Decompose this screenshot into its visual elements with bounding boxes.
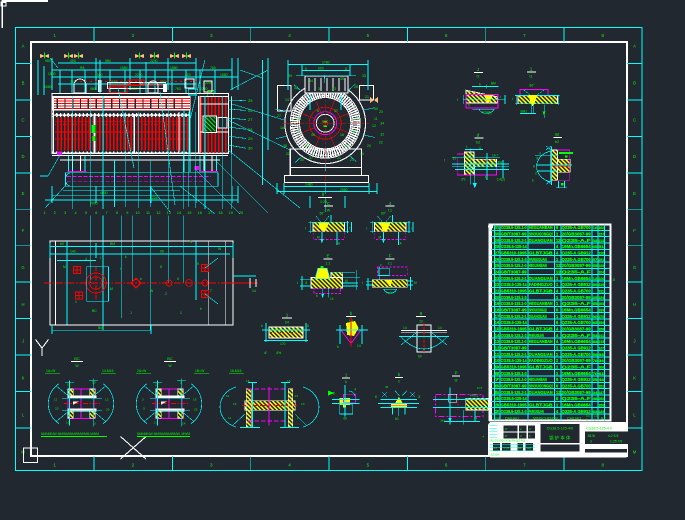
svg-text:12: 12 — [372, 124, 376, 128]
svg-text:C: C — [21, 117, 24, 122]
svg-text:Ⅰ: Ⅰ — [120, 267, 121, 271]
svg-text:锅 炉 本 体: 锅 炉 本 体 — [549, 435, 571, 442]
svg-text:1: 1 — [586, 418, 588, 422]
svg-text:CG38.5-125-14: CG38.5-125-14 — [501, 244, 528, 249]
svg-text:4: 4 — [354, 387, 356, 391]
svg-text:b: b — [479, 83, 481, 87]
svg-text:PAIWUGUAN: PAIWUGUAN — [529, 257, 547, 262]
svg-text:35: 35 — [340, 77, 344, 81]
svg-text:t: t — [305, 227, 306, 231]
svg-text:CG38.5-125.2-1: CG38.5-125.2-1 — [501, 276, 528, 281]
svg-text:23: 23 — [55, 407, 59, 411]
svg-text:Q235-A.GB700: Q235-A.GB700 — [562, 383, 592, 388]
svg-text:M: M — [345, 279, 348, 283]
svg-text:32: 32 — [305, 144, 309, 148]
svg-text:14: 14 — [495, 333, 500, 338]
svg-text:37: 37 — [309, 156, 313, 160]
svg-text:1A=W: 1A=W — [46, 369, 56, 373]
svg-text:b: b — [140, 277, 142, 281]
svg-text:B: B — [22, 80, 25, 85]
svg-text:27: 27 — [495, 251, 500, 256]
svg-text:Q235-A.F: Q235-A.F — [562, 238, 592, 243]
svg-text:22: 22 — [155, 383, 159, 387]
svg-text:18: 18 — [495, 307, 500, 312]
svg-text:DUANGUAN: DUANGUAN — [529, 352, 553, 357]
svg-text:G: G — [633, 265, 636, 270]
svg-text:26: 26 — [495, 257, 500, 262]
svg-text:51: 51 — [599, 244, 605, 249]
svg-text:5: 5 — [367, 463, 370, 468]
svg-text:12: 12 — [556, 270, 561, 275]
svg-text:SHOUKONGQI: SHOUKONGQI — [529, 232, 553, 237]
svg-text:33: 33 — [593, 238, 599, 243]
svg-text:20: 20 — [379, 110, 383, 114]
svg-text:28: 28 — [354, 85, 358, 89]
svg-text:CG38.5-125.1-0: CG38.5-125.1-0 — [501, 263, 528, 268]
svg-text:t3: t3 — [455, 379, 458, 383]
svg-text:Q235-A.GB700: Q235-A.GB700 — [562, 352, 592, 357]
svg-text:Q235-A.F: Q235-A.F — [562, 333, 592, 338]
svg-text:CG38.5-125.1-0: CG38.5-125.1-0 — [501, 377, 528, 382]
svg-text:13: 13 — [301, 402, 305, 406]
svg-text:G: G — [21, 265, 24, 270]
svg-text:48: 48 — [593, 396, 599, 401]
svg-text:14: 14 — [357, 344, 361, 348]
svg-text:11: 11 — [226, 394, 229, 398]
svg-text:36: 36 — [352, 130, 356, 134]
svg-text:CG38.5-125-14: CG38.5-125-14 — [501, 282, 528, 287]
svg-text:16: 16 — [340, 133, 344, 137]
svg-text:GB5310-1995: GB5310-1995 — [501, 364, 528, 369]
svg-text:Ⅱ: Ⅱ — [322, 192, 324, 197]
svg-text:Ⅰ: Ⅰ — [100, 256, 101, 260]
svg-text:16Mn.GB6654: 16Mn.GB6654 — [562, 371, 592, 376]
svg-text:18: 18 — [218, 211, 222, 215]
svg-text:2T: 2T — [505, 434, 509, 438]
svg-text:GB5310-1995: GB5310-1995 — [501, 289, 528, 294]
svg-text:273: 273 — [599, 314, 605, 319]
svg-text:32: 32 — [380, 132, 384, 136]
svg-text:Q235-A.F: Q235-A.F — [562, 396, 592, 401]
svg-text:GB5310-1995: GB5310-1995 — [501, 402, 528, 407]
svg-text:6: 6 — [445, 33, 448, 38]
svg-text:H: H — [633, 302, 636, 307]
svg-text:5: 5 — [190, 240, 192, 244]
svg-text:Q235-A GB912: Q235-A GB912 — [562, 282, 592, 287]
svg-text:M: M — [317, 235, 320, 239]
svg-text:CG38.5-125-4/0: CG38.5-125-4/0 — [547, 427, 573, 431]
svg-text:193: 193 — [599, 263, 605, 268]
svg-text:d: d — [477, 133, 480, 138]
svg-text:HEGUANBAN: HEGUANBAN — [529, 377, 547, 382]
svg-text:29: 29 — [296, 117, 300, 121]
svg-text:K: K — [22, 376, 25, 381]
svg-text:14: 14 — [403, 326, 407, 330]
svg-text:t: t — [297, 281, 298, 285]
svg-text:SJ GH: SJ GH — [491, 453, 500, 457]
svg-text:5: 5 — [305, 67, 307, 71]
svg-text:3: 3 — [64, 211, 66, 215]
svg-text:3: 3 — [210, 463, 213, 468]
svg-text:16Mn.GB6654: 16Mn.GB6654 — [562, 244, 592, 249]
svg-text:16Mn.GB6654: 16Mn.GB6654 — [562, 276, 592, 281]
svg-text:3: 3 — [180, 381, 182, 385]
svg-text:14-7: 14-7 — [492, 154, 499, 158]
svg-text:t: t — [362, 281, 363, 285]
svg-text:4: 4 — [288, 33, 291, 38]
svg-text:M: M — [63, 265, 66, 269]
svg-text:45: 45 — [385, 385, 389, 389]
svg-text:17: 17 — [495, 314, 500, 319]
svg-text:CG38.5-125.1-0: CG38.5-125.1-0 — [501, 301, 528, 306]
svg-text:45: 45 — [311, 133, 315, 137]
svg-text:b: b — [261, 324, 263, 328]
svg-text:GB/T3087-99: GB/T3087-99 — [501, 383, 528, 388]
svg-text:53: 53 — [593, 333, 599, 338]
svg-text:23: 23 — [495, 276, 500, 281]
svg-text:t: t — [457, 98, 458, 102]
svg-text:1580: 1580 — [48, 72, 56, 76]
svg-text:61: 61 — [599, 371, 605, 376]
svg-text:12: 12 — [556, 390, 561, 395]
svg-text:4-M12: 4-M12 — [470, 394, 479, 398]
svg-text:100: 100 — [599, 276, 605, 281]
svg-text:19: 19 — [355, 117, 359, 121]
svg-text:30: 30 — [495, 232, 500, 237]
svg-text:BM: BM — [491, 82, 496, 86]
svg-text:P: P — [455, 371, 458, 376]
svg-text:20: 20 — [239, 211, 243, 215]
svg-text:BC: BC — [92, 309, 97, 313]
svg-text:1580: 1580 — [170, 66, 178, 70]
svg-text:21: 21 — [495, 289, 500, 294]
svg-text:t: t — [512, 97, 513, 101]
svg-text:GLBTJGB: GLBTJGB — [529, 251, 553, 256]
svg-text:90: 90 — [593, 314, 599, 319]
svg-text:19: 19 — [495, 301, 500, 306]
svg-text:8: 8 — [537, 157, 539, 161]
svg-text:1580: 1580 — [44, 85, 52, 89]
svg-text:107: 107 — [599, 345, 605, 350]
svg-text:16Mn.GB6654: 16Mn.GB6654 — [562, 339, 592, 344]
svg-text:t: t — [500, 95, 501, 99]
svg-text:SHOUKONGQI: SHOUKONGQI — [529, 307, 547, 312]
svg-text:8: 8 — [345, 67, 347, 71]
svg-text:CG38.5-125.1-3: CG38.5-125.1-3 — [501, 257, 528, 262]
svg-text:283: 283 — [599, 301, 605, 306]
svg-text:356: 356 — [599, 320, 605, 325]
svg-text:F: F — [389, 254, 392, 259]
svg-text:GB/T3087-99: GB/T3087-99 — [501, 307, 528, 312]
svg-text:PAIWUGUAN: PAIWUGUAN — [529, 333, 544, 338]
svg-text:10: 10 — [136, 211, 140, 215]
svg-text:57: 57 — [593, 257, 599, 262]
svg-text:11: 11 — [374, 117, 378, 121]
svg-text:187: 187 — [599, 390, 605, 395]
svg-text:7000: 7000 — [90, 202, 98, 206]
svg-text:20/GB3087-99: 20/GB3087-99 — [562, 263, 592, 268]
svg-text:21: 21 — [337, 156, 341, 160]
svg-text:11: 11 — [228, 416, 231, 420]
svg-text:12: 12 — [556, 263, 561, 268]
svg-text:DUANGUAN: DUANGUAN — [529, 276, 553, 281]
svg-text:DUANGUAN: DUANGUAN — [529, 314, 547, 319]
svg-text:14: 14 — [330, 297, 334, 301]
svg-text:980: 980 — [105, 59, 111, 63]
svg-text:4000: 4000 — [100, 191, 108, 195]
svg-text:1:1: 1:1 — [326, 262, 331, 266]
svg-text:2: 2 — [398, 380, 400, 384]
svg-text:b: b — [200, 307, 202, 311]
svg-text:NMNMNW MMWMWMWMW, MWM: NMNMNW MMWMWMWMW, MWM — [137, 432, 190, 436]
svg-text:20/GB3087-99: 20/GB3087-99 — [562, 295, 592, 300]
svg-text:24: 24 — [495, 270, 500, 275]
svg-text:170: 170 — [280, 342, 286, 346]
svg-text:HEGUANBAN: HEGUANBAN — [529, 339, 553, 344]
svg-text:t:1: t:1 — [388, 262, 392, 266]
svg-text:13: 13 — [167, 211, 171, 215]
svg-text:9: 9 — [126, 211, 128, 215]
svg-text:12: 12 — [156, 211, 160, 215]
svg-text:93: 93 — [599, 352, 605, 357]
svg-text:31: 31 — [453, 157, 457, 161]
svg-text:8: 8 — [533, 165, 535, 169]
svg-text:9: 9 — [143, 407, 145, 411]
svg-text:XYZ: XYZ — [504, 446, 510, 450]
svg-text:450: 450 — [70, 59, 76, 63]
svg-text:6: 6 — [177, 277, 179, 281]
svg-text:760: 760 — [175, 87, 181, 91]
svg-text:35: 35 — [593, 295, 599, 300]
svg-text:WQ: WQ — [527, 446, 533, 450]
svg-text:FADINGZUO: FADINGZUO — [529, 282, 554, 287]
svg-text:2240: 2240 — [150, 59, 158, 63]
svg-text:27: 27 — [248, 117, 253, 122]
svg-text:2A=W: 2A=W — [137, 369, 147, 373]
svg-text:K: K — [633, 376, 636, 381]
svg-text:14-M16: 14-M16 — [102, 369, 114, 373]
svg-text:980: 980 — [45, 59, 51, 63]
svg-text:HEGUANBAN: HEGUANBAN — [529, 225, 553, 230]
svg-text:2: 2 — [132, 463, 135, 468]
svg-text:60°: 60° — [381, 212, 387, 216]
svg-text:60: 60 — [418, 355, 422, 359]
svg-text:900: 900 — [318, 67, 324, 71]
svg-text:129: 129 — [599, 282, 605, 287]
svg-text:16: 16 — [198, 211, 202, 215]
svg-text:31: 31 — [495, 225, 500, 230]
svg-text:24: 24 — [182, 422, 186, 426]
svg-text:t: t — [444, 159, 445, 163]
svg-text:13: 13 — [495, 339, 500, 344]
svg-text:b: b — [337, 345, 339, 349]
svg-text:Q235-A.GB700: Q235-A.GB700 — [562, 320, 592, 325]
svg-text:60°: 60° — [529, 83, 535, 87]
svg-text:980: 980 — [90, 87, 96, 91]
svg-text:96: 96 — [160, 250, 164, 254]
svg-text:GB5310-1995: GB5310-1995 — [501, 326, 528, 331]
svg-text:140: 140 — [70, 250, 76, 254]
svg-text:M: M — [379, 235, 382, 239]
svg-text:2240: 2240 — [205, 81, 213, 85]
svg-text:20: 20 — [106, 408, 110, 412]
svg-text:25: 25 — [495, 263, 500, 268]
svg-text:t:1: t:1 — [388, 209, 392, 213]
svg-text:3*1: 3*1 — [461, 178, 466, 182]
svg-text:5: 5 — [367, 33, 370, 38]
svg-text:b2: b2 — [555, 140, 559, 144]
svg-text:Q235-A.GB700: Q235-A.GB700 — [562, 257, 592, 262]
svg-text:760: 760 — [210, 66, 216, 70]
svg-text:3k1: 3k1 — [440, 419, 445, 423]
svg-text:A: A — [22, 43, 25, 48]
svg-text:5: 5 — [85, 211, 87, 215]
svg-text:34: 34 — [380, 122, 384, 126]
svg-text:PAIWUGUAN: PAIWUGUAN — [529, 409, 544, 414]
svg-text:E: E — [22, 191, 25, 196]
svg-text:CG38.5-125.1-3: CG38.5-125.1-3 — [501, 371, 528, 376]
svg-text:2: 2 — [132, 33, 135, 38]
svg-text:213: 213 — [599, 238, 605, 243]
svg-text:3: 3 — [210, 33, 213, 38]
svg-text:3: 3 — [318, 87, 320, 91]
svg-text:b: b — [345, 380, 347, 384]
svg-text:.8: .8 — [612, 278, 615, 282]
svg-text:8: 8 — [160, 265, 162, 269]
svg-text:11: 11 — [495, 352, 500, 357]
svg-text:b4: b4 — [285, 321, 289, 325]
svg-text:19: 19 — [92, 381, 96, 385]
svg-text:16Mn.GB6654: 16Mn.GB6654 — [562, 402, 592, 407]
svg-text:CG38.5-125.2-1: CG38.5-125.2-1 — [501, 314, 528, 319]
svg-text:2: 2 — [54, 211, 56, 215]
svg-text:2: 2 — [165, 292, 167, 296]
svg-text:65: 65 — [593, 244, 599, 249]
svg-text:25: 25 — [248, 98, 253, 103]
svg-text:4: 4 — [479, 146, 481, 150]
svg-text:Q235-A GB912: Q235-A GB912 — [562, 377, 592, 382]
svg-text:27: 27 — [277, 114, 281, 118]
svg-text:2: 2 — [594, 418, 596, 422]
svg-text:CG38.5-125.2-1: CG38.5-125.2-1 — [501, 352, 528, 357]
svg-text:CG38.5-125-4-0: CG38.5-125-4-0 — [586, 427, 612, 431]
svg-text:85: 85 — [593, 320, 599, 325]
svg-text:16: 16 — [67, 383, 71, 387]
svg-text:4%: 4% — [498, 161, 503, 165]
svg-text:13: 13 — [287, 379, 291, 383]
svg-text:GB/T3087-99: GB/T3087-99 — [501, 232, 528, 237]
svg-text:1:4(2): 1:4(2) — [497, 178, 506, 182]
svg-text:NMNMNW MMWMWMWMWMM.MWM: NMNMNW MMWMWMWMWMM.MWM — [41, 432, 99, 436]
svg-text:8: 8 — [116, 211, 118, 215]
svg-text:1:25 7/9: 1:25 7/9 — [610, 439, 622, 443]
svg-text:60: 60 — [344, 417, 348, 421]
svg-text:Q235-A.GB700: Q235-A.GB700 — [562, 225, 592, 230]
svg-text:12: 12 — [495, 345, 500, 350]
svg-text:2980: 2980 — [340, 188, 348, 192]
svg-text:GB5310-1995: GB5310-1995 — [501, 251, 528, 256]
svg-text:70: 70 — [593, 371, 599, 376]
svg-text:2: 2 — [535, 172, 537, 176]
svg-text:36: 36 — [599, 358, 605, 363]
svg-text:7: 7 — [523, 463, 526, 468]
svg-text:12: 12 — [419, 320, 423, 324]
svg-text:44: 44 — [309, 79, 313, 83]
svg-text:3: 3 — [142, 398, 144, 402]
svg-text:CG38.5-125.1-3: CG38.5-125.1-3 — [501, 333, 528, 338]
svg-text:78: 78 — [593, 358, 599, 363]
svg-text:12: 12 — [105, 398, 109, 402]
svg-text:t: t — [466, 145, 467, 149]
svg-text:38: 38 — [283, 144, 287, 148]
svg-text:43: 43 — [332, 87, 336, 91]
svg-text:H: H — [21, 302, 24, 307]
svg-text:BZ: BZ — [518, 446, 522, 450]
svg-text:b0: b0 — [60, 242, 64, 246]
svg-text:34: 34 — [593, 390, 599, 395]
svg-text:8: 8 — [307, 324, 309, 328]
svg-text:14: 14 — [474, 416, 478, 420]
svg-text:55: 55 — [593, 301, 599, 306]
svg-text:Q235-A.F: Q235-A.F — [562, 270, 592, 275]
svg-text:19: 19 — [229, 211, 233, 215]
svg-text:DUANGUAN: DUANGUAN — [529, 390, 553, 395]
svg-text:4: 4 — [74, 211, 76, 215]
svg-text:4.2 5.8: 4.2 5.8 — [608, 434, 618, 438]
svg-text:6: 6 — [317, 109, 319, 113]
svg-text:169: 169 — [599, 409, 605, 414]
svg-text:215: 215 — [599, 339, 605, 344]
svg-text:14: 14 — [252, 289, 256, 293]
svg-text:CAILIAO: CAILIAO — [567, 416, 581, 420]
svg-text:BC: BC — [167, 356, 173, 361]
svg-text:1T: 1T — [505, 427, 509, 431]
svg-text:C: C — [633, 117, 636, 122]
svg-text:t: t — [367, 227, 368, 231]
svg-text:259: 259 — [599, 402, 605, 407]
svg-text:GB/T3087-99: GB/T3087-99 — [501, 345, 528, 350]
svg-text:20/GB3087-99: 20/GB3087-99 — [562, 358, 592, 363]
svg-text:154: 154 — [599, 295, 605, 300]
svg-text:t: t — [411, 227, 412, 231]
svg-text:1: 1 — [75, 300, 77, 304]
svg-text:1: 1 — [530, 67, 533, 72]
svg-text:BM: BM — [110, 242, 115, 246]
svg-text:Q235-A.GB700: Q235-A.GB700 — [562, 289, 592, 294]
svg-text:16: 16 — [193, 398, 197, 402]
svg-text:A: A — [633, 43, 636, 48]
svg-text:Q235-A GB912: Q235-A GB912 — [562, 314, 592, 319]
svg-text:12: 12 — [593, 276, 599, 281]
svg-text:GLBTJGB: GLBTJGB — [529, 364, 553, 369]
svg-text:7: 7 — [210, 289, 212, 293]
svg-text:16: 16 — [246, 379, 250, 383]
svg-text:11: 11 — [146, 211, 150, 215]
svg-text:Q235-A.F: Q235-A.F — [562, 364, 592, 369]
svg-text:5: 5 — [297, 130, 299, 134]
svg-text:1780: 1780 — [322, 61, 330, 65]
svg-text:1580: 1580 — [220, 73, 228, 77]
svg-text:b=5: b=5 — [387, 290, 392, 294]
svg-text:b: b — [532, 179, 534, 183]
svg-text:1580: 1580 — [95, 73, 103, 77]
svg-text:M: M — [633, 449, 637, 454]
svg-text:358: 358 — [599, 326, 605, 331]
svg-text:29: 29 — [495, 238, 500, 243]
svg-text:t1: t1 — [552, 99, 555, 103]
svg-text:39: 39 — [288, 74, 292, 78]
svg-text:10: 10 — [360, 152, 364, 156]
